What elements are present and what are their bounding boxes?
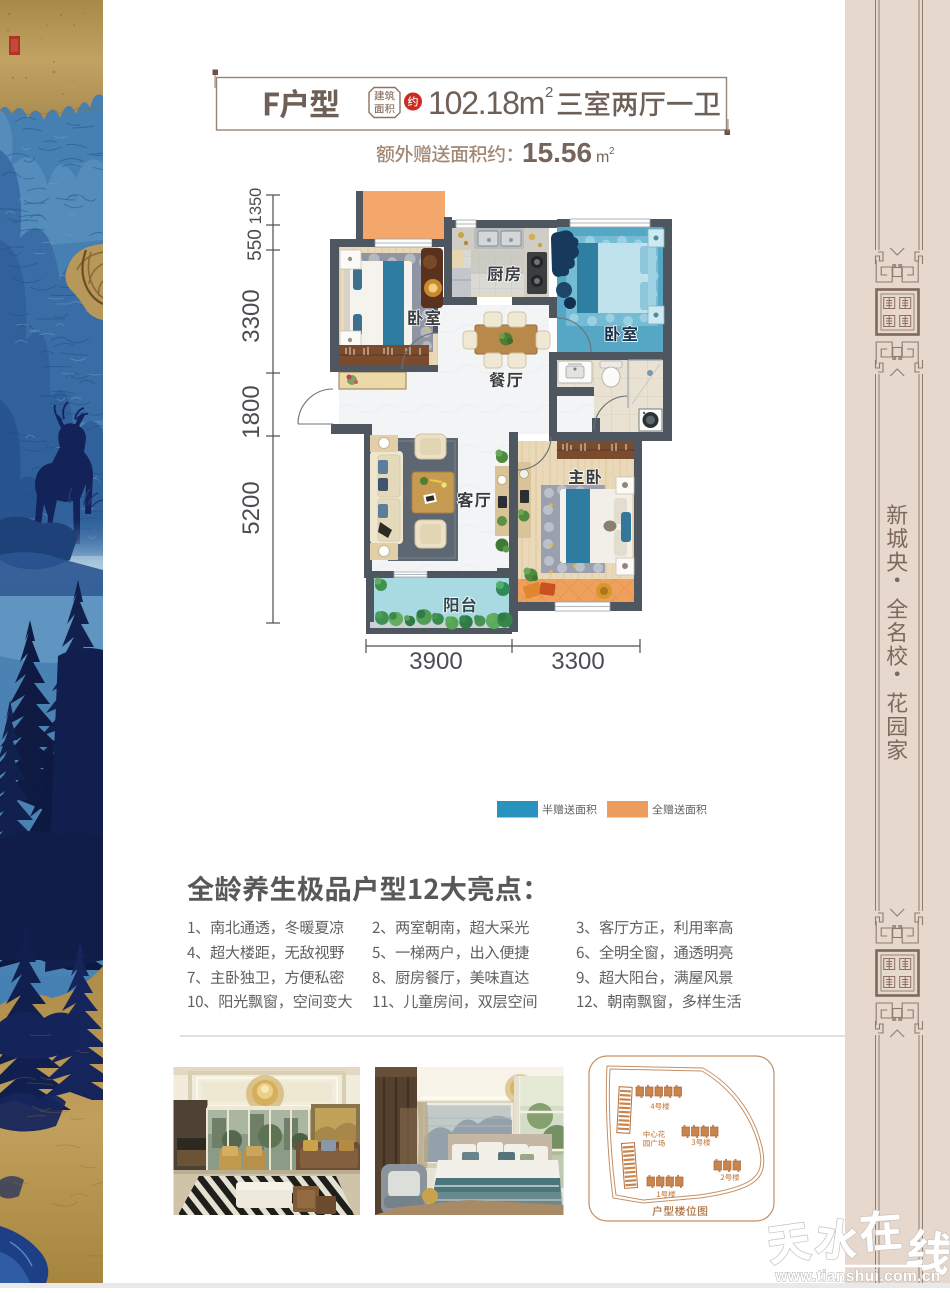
- svg-text:www.tianshui.com.cn: www.tianshui.com.cn: [774, 1268, 941, 1285]
- svg-text:3900: 3900: [409, 648, 462, 675]
- svg-text:550: 550: [245, 229, 266, 261]
- svg-text:102.18m: 102.18m: [428, 85, 544, 121]
- svg-text:1350: 1350: [247, 188, 265, 225]
- svg-text:2: 2: [545, 84, 553, 101]
- svg-text:2: 2: [609, 146, 615, 157]
- svg-text:5200: 5200: [238, 481, 265, 534]
- svg-text:m: m: [596, 149, 609, 166]
- svg-text:1800: 1800: [238, 385, 265, 438]
- svg-text:3300: 3300: [551, 648, 604, 675]
- svg-text:15.56: 15.56: [522, 137, 592, 168]
- svg-text:3300: 3300: [238, 289, 265, 342]
